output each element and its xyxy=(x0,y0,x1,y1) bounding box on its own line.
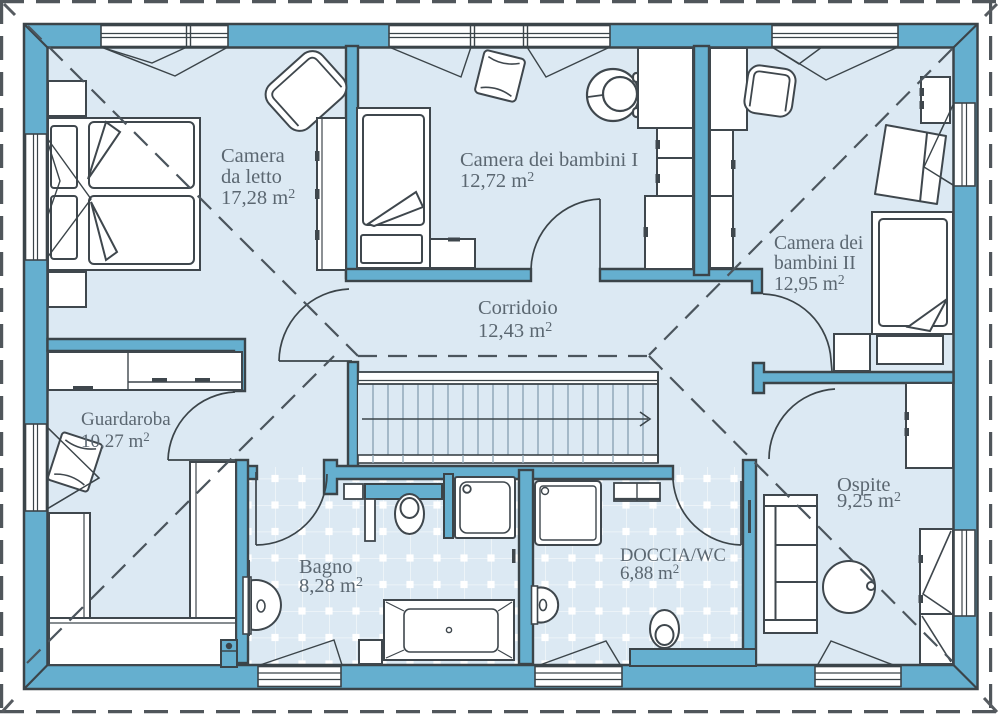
svg-text:8,28 m2: 8,28 m2 xyxy=(299,575,363,597)
svg-text:6,88 m2: 6,88 m2 xyxy=(620,561,679,584)
svg-text:Camera dei bambini I: Camera dei bambini I xyxy=(460,149,638,171)
svg-text:da letto: da letto xyxy=(221,166,282,188)
svg-text:9,25 m2: 9,25 m2 xyxy=(837,490,901,512)
svg-text:Guardaroba: Guardaroba xyxy=(81,409,171,430)
svg-text:12,43 m2: 12,43 m2 xyxy=(478,320,552,342)
svg-text:10,27 m2: 10,27 m2 xyxy=(81,429,150,452)
svg-text:12,72 m2: 12,72 m2 xyxy=(460,170,534,192)
svg-text:bambini II: bambini II xyxy=(774,253,856,274)
svg-text:12,95 m2: 12,95 m2 xyxy=(774,272,845,295)
svg-text:Corridoio: Corridoio xyxy=(478,297,558,319)
svg-text:Camera dei: Camera dei xyxy=(774,233,864,254)
svg-text:Camera: Camera xyxy=(221,145,285,167)
svg-text:17,28 m2: 17,28 m2 xyxy=(221,187,295,209)
